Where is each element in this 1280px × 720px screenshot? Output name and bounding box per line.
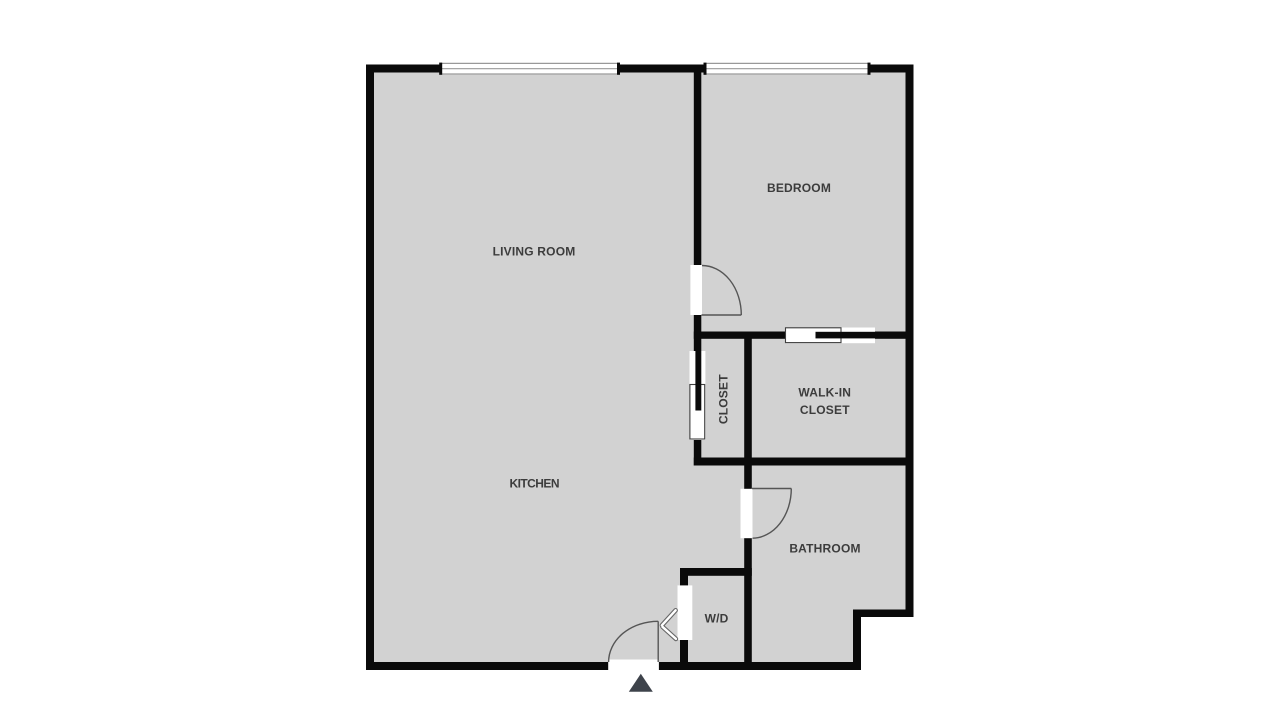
- svg-text:CLOSET: CLOSET: [800, 403, 850, 417]
- svg-text:W/D: W/D: [705, 612, 729, 626]
- svg-text:LIVING ROOM: LIVING ROOM: [493, 245, 576, 259]
- svg-text:BATHROOM: BATHROOM: [789, 542, 860, 556]
- svg-text:BEDROOM: BEDROOM: [767, 181, 831, 195]
- svg-text:WALK-IN: WALK-IN: [798, 386, 851, 400]
- svg-text:CLOSET: CLOSET: [717, 374, 731, 424]
- svg-text:KITCHEN: KITCHEN: [509, 477, 558, 491]
